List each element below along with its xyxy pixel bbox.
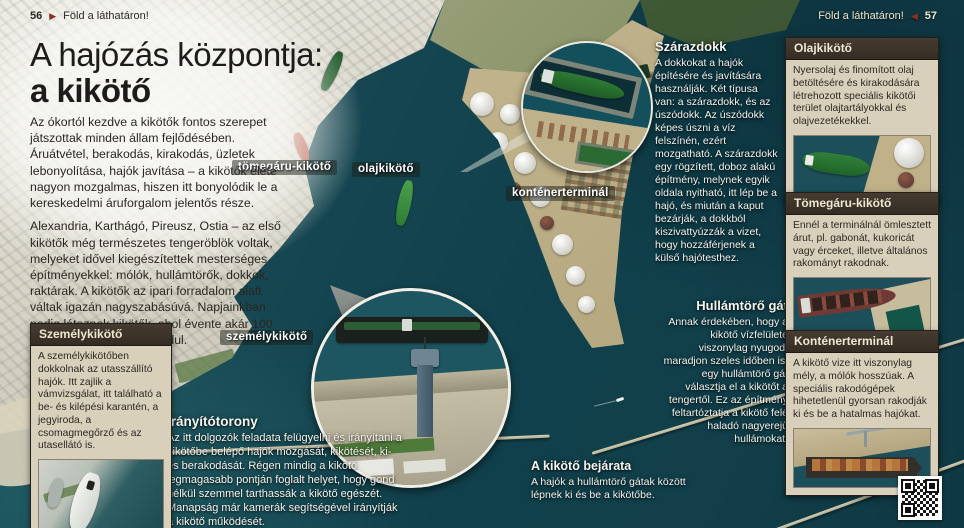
dark-ship: [336, 317, 488, 343]
annotation-entrance-title: A kikötő bejárata: [531, 459, 715, 473]
page-number-right: 57: [925, 10, 937, 22]
tanker-bridge: [805, 155, 814, 166]
page-number-left: 56: [30, 10, 42, 22]
green-tanker: [801, 149, 871, 178]
qr-code: [898, 476, 942, 520]
qr-finder: [901, 479, 915, 493]
oil-tank: [552, 234, 573, 255]
cruise-ship-photo: [38, 459, 164, 528]
bulk-carrier-photo: [793, 277, 931, 335]
infobox-passenger-title: Személykikötő: [31, 324, 171, 346]
infobox-container-terminal: Konténerterminál A kikötő vize itt viszo…: [785, 330, 939, 496]
ship-bridge: [402, 319, 412, 331]
drydock-walls: [524, 53, 643, 119]
infobox-bulk-body: Ennél a terminálnál ömlesztett árut, pl.…: [786, 215, 938, 275]
infobox-container-title: Konténerterminál: [786, 331, 938, 353]
intro-paragraph-1: Az ókortól kezdve a kikötők fontos szere…: [30, 114, 284, 211]
page-title-line1: A hajózás központja:: [30, 38, 323, 72]
drydock-inset-photo: [521, 41, 653, 173]
oil-tank: [578, 296, 595, 313]
infobox-passenger-port: Személykikötő A személykikötőben dokkoln…: [30, 323, 172, 528]
annotation-drydock: Szárazdokk A dokkokat a hajók építésére …: [655, 39, 779, 265]
arrow-left-icon: ◀: [911, 12, 918, 21]
annotation-breakwater: Hullámtörő gát Annak érdekében, hogy a k…: [660, 298, 788, 446]
infobox-bulk-title: Tömegáru-kikötő: [786, 193, 938, 215]
series-title-left: Föld a láthatáron!: [63, 10, 149, 22]
infobox-bulk-port: Tömegáru-kikötő Ennél a terminálnál ömle…: [785, 192, 939, 343]
annotation-control-tower-title: Irányítótorony: [167, 414, 403, 429]
oil-tanker-photo: [793, 135, 931, 197]
infobox-passenger-body: A személykikötőben dokkolnak az utasszál…: [31, 346, 171, 457]
ship-superstructure: [800, 298, 811, 314]
intro-text: Az ókortól kezdve a kikötők fontos szere…: [30, 114, 284, 355]
ship-deck: [344, 322, 480, 330]
oil-tank: [500, 104, 520, 124]
oil-tank-dark: [540, 216, 554, 230]
series-title-right: Föld a láthatáron!: [818, 10, 904, 22]
second-dock: [575, 141, 653, 173]
container-stacks: [812, 459, 908, 471]
qr-finder: [925, 479, 939, 493]
annotation-control-tower: Irányítótorony Az itt dolgozók feladata …: [167, 414, 403, 528]
annotation-entrance: A kikötő bejárata A hajók a hullámtörő g…: [531, 459, 715, 502]
annotation-entrance-body: A hajók a hullámtörő gátak között lépnek…: [531, 476, 715, 502]
qr-finder: [901, 503, 915, 517]
oil-tank: [894, 138, 924, 168]
infobox-oil-body: Nyersolaj és finomított olaj betöltésére…: [786, 60, 938, 133]
annotation-drydock-body: A dokkokat a hajók építésére és javításá…: [655, 57, 779, 265]
infobox-oil-port: Olajkikötő Nyersolaj és finomított olaj …: [785, 37, 939, 205]
header-right: Föld a láthatáron! ◀ 57: [818, 10, 937, 22]
ship-funnel: [86, 480, 95, 491]
annotation-drydock-title: Szárazdokk: [655, 39, 779, 54]
annotation-breakwater-title: Hullámtörő gát: [660, 298, 788, 313]
white-building: [403, 459, 446, 474]
page-title: A hajózás központja: a kikötő: [30, 38, 323, 109]
photo-label-oil-port: olajkikötő: [352, 162, 420, 177]
header-left: 56 ▶ Föld a láthatáron!: [30, 10, 149, 22]
container-ship: [806, 457, 922, 478]
oil-tank-dark: [898, 172, 914, 188]
page-title-line2: a kikötő: [30, 74, 323, 108]
book-spread-port: tömegáru-kikötő olajkikötő konténertermi…: [0, 0, 964, 528]
photo-label-container-terminal: konténerterminál: [506, 186, 615, 201]
oil-tank: [566, 266, 585, 285]
tower-shaft: [417, 365, 433, 437]
annotation-breakwater-body: Annak érdekében, hogy a kikötő vízfelüle…: [660, 316, 788, 446]
arrow-right-icon: ▶: [49, 12, 56, 21]
infobox-container-body: A kikötő vize itt viszonylag mély, a mól…: [786, 353, 938, 426]
infobox-oil-title: Olajkikötő: [786, 38, 938, 60]
annotation-control-tower-body: Az itt dolgozók feladata felügyelni és i…: [167, 432, 403, 528]
crane-leg: [864, 431, 867, 447]
